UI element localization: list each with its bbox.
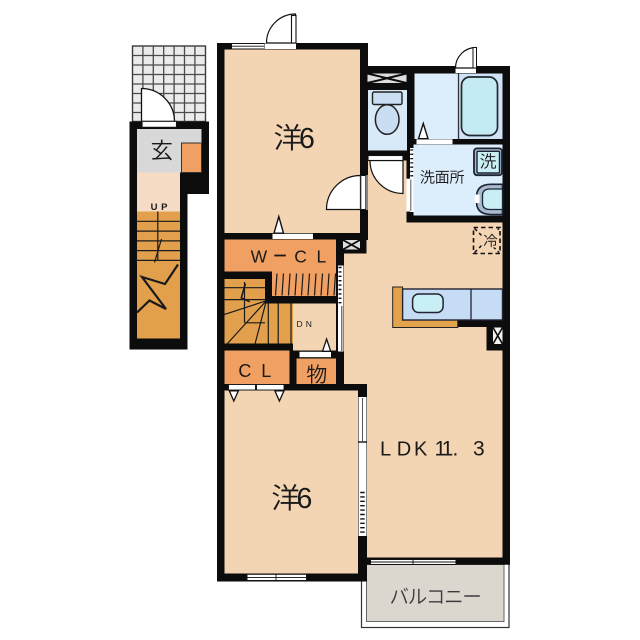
svg-text:.: . bbox=[453, 437, 459, 460]
svg-text:L: L bbox=[380, 438, 391, 460]
svg-text:C: C bbox=[294, 247, 307, 267]
svg-text:6: 6 bbox=[297, 483, 313, 515]
svg-text:D: D bbox=[397, 438, 411, 460]
svg-text:K: K bbox=[414, 438, 428, 460]
svg-text:L: L bbox=[317, 247, 327, 267]
svg-text:D: D bbox=[297, 319, 305, 329]
svg-text:C: C bbox=[238, 361, 251, 381]
svg-text:3: 3 bbox=[473, 437, 485, 460]
svg-text:6: 6 bbox=[299, 123, 315, 155]
svg-text:W: W bbox=[251, 247, 268, 267]
svg-text:N: N bbox=[306, 319, 314, 329]
svg-text:L: L bbox=[261, 361, 271, 381]
